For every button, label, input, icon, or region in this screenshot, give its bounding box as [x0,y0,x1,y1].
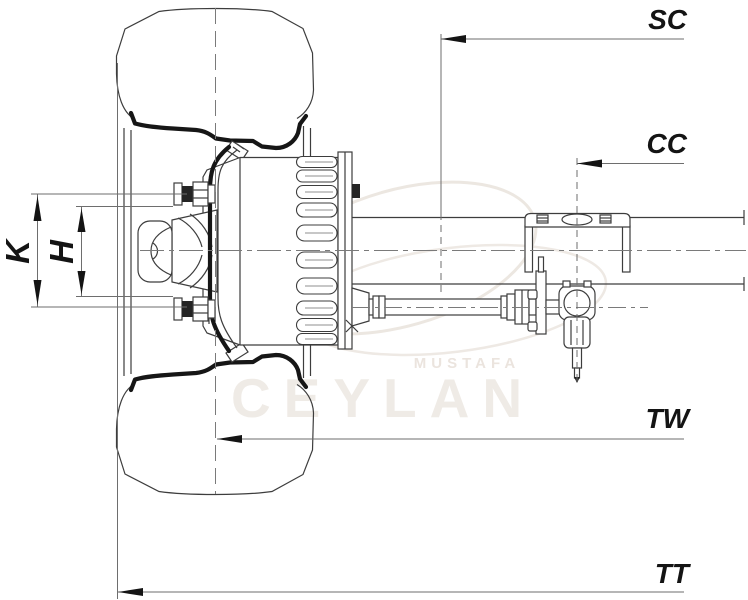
axle-technical-drawing: MUSTAFA CEYLAN [0,0,748,600]
dim-label-tt: TT [655,558,692,589]
dimension-cc: CC [577,128,688,386]
dim-label-tw: TW [645,403,691,434]
dim-label-k: K [0,238,36,264]
dimension-tt: TT [118,63,692,599]
rim-profile [131,113,306,148]
dim-label-sc: SC [648,4,688,35]
wheel-stud-bottom [174,297,215,321]
watermark-text-large: CEYLAN [231,367,535,429]
seat-clip [537,215,548,223]
dim-label-cc: CC [647,128,688,159]
seat-clip [600,215,611,223]
backplate-bolt [352,184,360,198]
dim-label-h: H [43,239,80,264]
